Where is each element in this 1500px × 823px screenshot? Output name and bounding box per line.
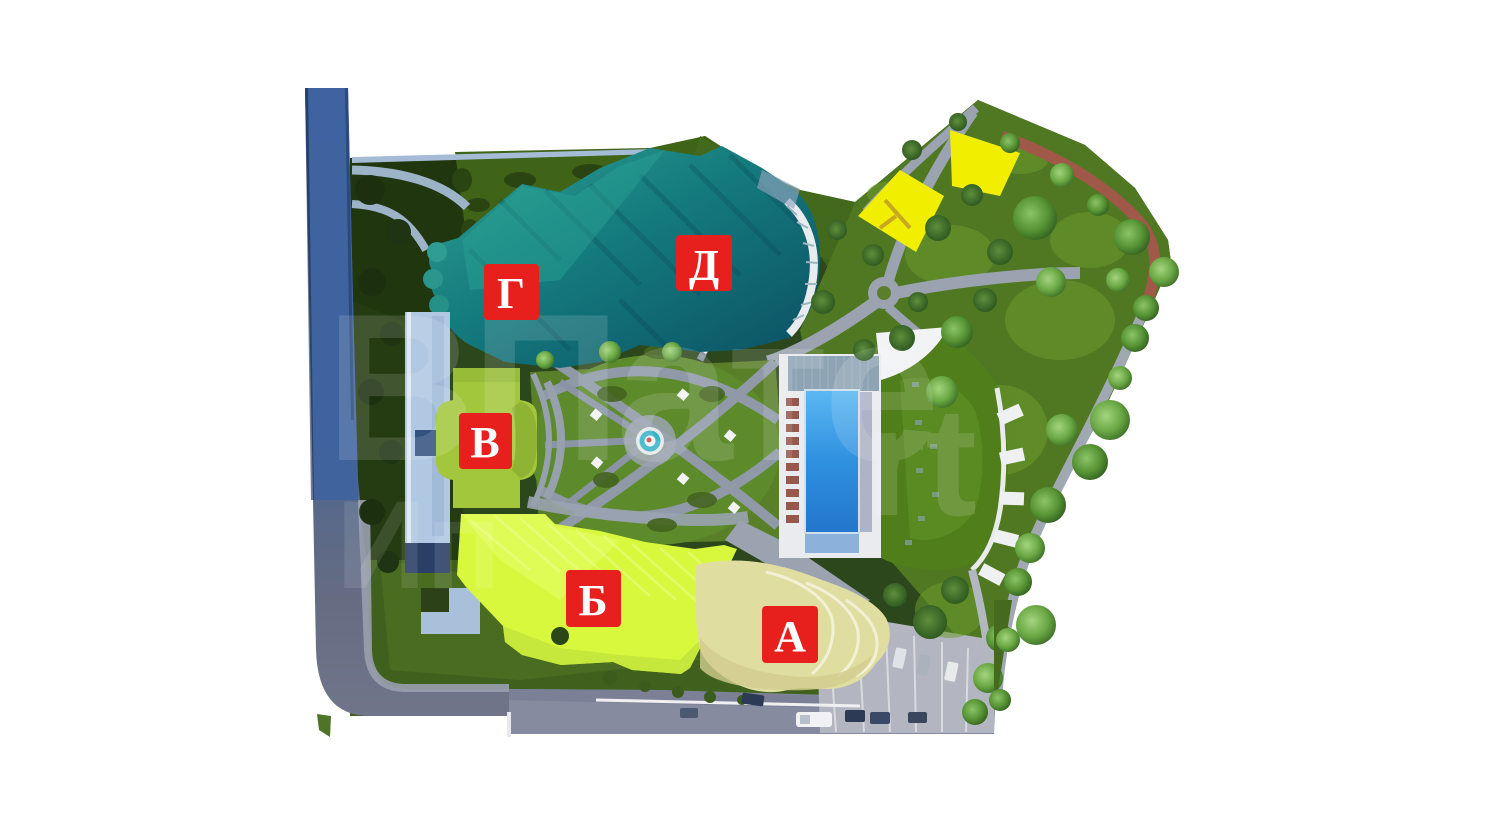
svg-text:ВПате: ВПате xyxy=(325,270,934,505)
svg-text:Г: Г xyxy=(497,269,525,318)
svg-text:Ип: Ип xyxy=(336,476,501,615)
svg-text:Б: Б xyxy=(578,576,607,625)
svg-text:В: В xyxy=(470,418,499,467)
svg-text:rt: rt xyxy=(865,375,977,548)
svg-text:Д: Д xyxy=(689,241,719,290)
svg-text:А: А xyxy=(774,612,806,661)
